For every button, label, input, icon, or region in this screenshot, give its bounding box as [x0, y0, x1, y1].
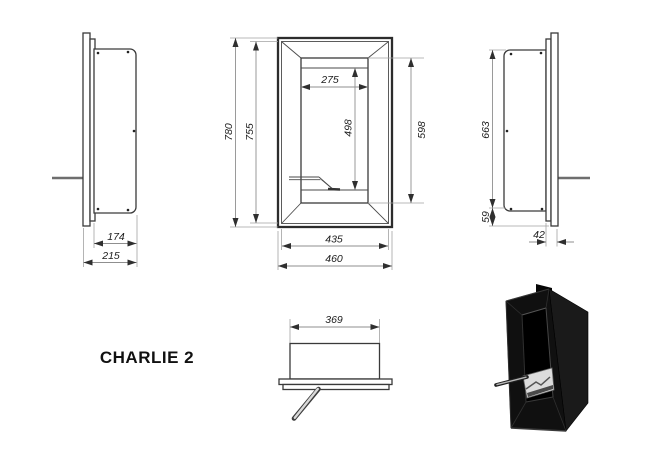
side-view-left: 174 215	[52, 33, 137, 267]
dim-total-depth: 215	[84, 250, 137, 263]
dim-total-height-label: 780	[223, 123, 235, 141]
drawing-canvas: 174 215	[0, 0, 650, 468]
dim-frame-width-label: 435	[325, 234, 343, 246]
dim-bottom-offset-label: 59	[480, 211, 492, 223]
inner-plate-edge	[546, 39, 551, 221]
dim-total-depth-label: 215	[101, 250, 120, 262]
dim-body-height: 663	[480, 50, 493, 208]
dim-body-height-label: 663	[480, 121, 492, 139]
base-plate-lower	[283, 385, 389, 390]
dim-frame-width: 435	[282, 234, 388, 247]
dim-bottom-offset: 59	[480, 208, 493, 226]
dim-total-height: 780	[223, 38, 236, 227]
base-plate-upper	[279, 379, 392, 385]
render-3d	[496, 284, 588, 431]
burner-box	[290, 344, 380, 380]
dim-total-width: 460	[278, 253, 392, 266]
dim-recess-depth-label: 174	[107, 231, 125, 243]
front-view: 780 755 275 498 598 435 460	[223, 38, 428, 270]
dim-frame-depth: 42	[529, 229, 574, 242]
product-title: CHARLIE 2	[100, 348, 194, 367]
body-housing	[94, 49, 136, 213]
dim-opening-width-label: 275	[320, 74, 339, 86]
technical-drawing-sheet: 174 215	[0, 0, 650, 468]
side-view-right: 663 59 42	[480, 33, 590, 247]
dim-inner-height-label: 498	[343, 119, 355, 137]
front-plate-edge	[83, 33, 90, 226]
dim-recess-depth: 174	[94, 231, 137, 244]
dim-frame-height: 755	[244, 42, 256, 224]
dim-opening-height-label: 598	[416, 121, 428, 139]
dim-total-width-label: 460	[325, 253, 343, 265]
dim-frame-depth-label: 42	[533, 229, 545, 241]
dim-frame-height-label: 755	[244, 123, 256, 141]
outer-frame	[278, 38, 392, 227]
dim-burner-width: 369	[290, 314, 380, 327]
dim-opening-height: 598	[411, 58, 428, 203]
top-view: 369	[279, 314, 392, 419]
poker-rod-top	[294, 389, 319, 419]
body-housing	[504, 50, 546, 211]
dim-burner-width-label: 369	[325, 314, 343, 326]
front-plate-edge	[551, 33, 558, 226]
